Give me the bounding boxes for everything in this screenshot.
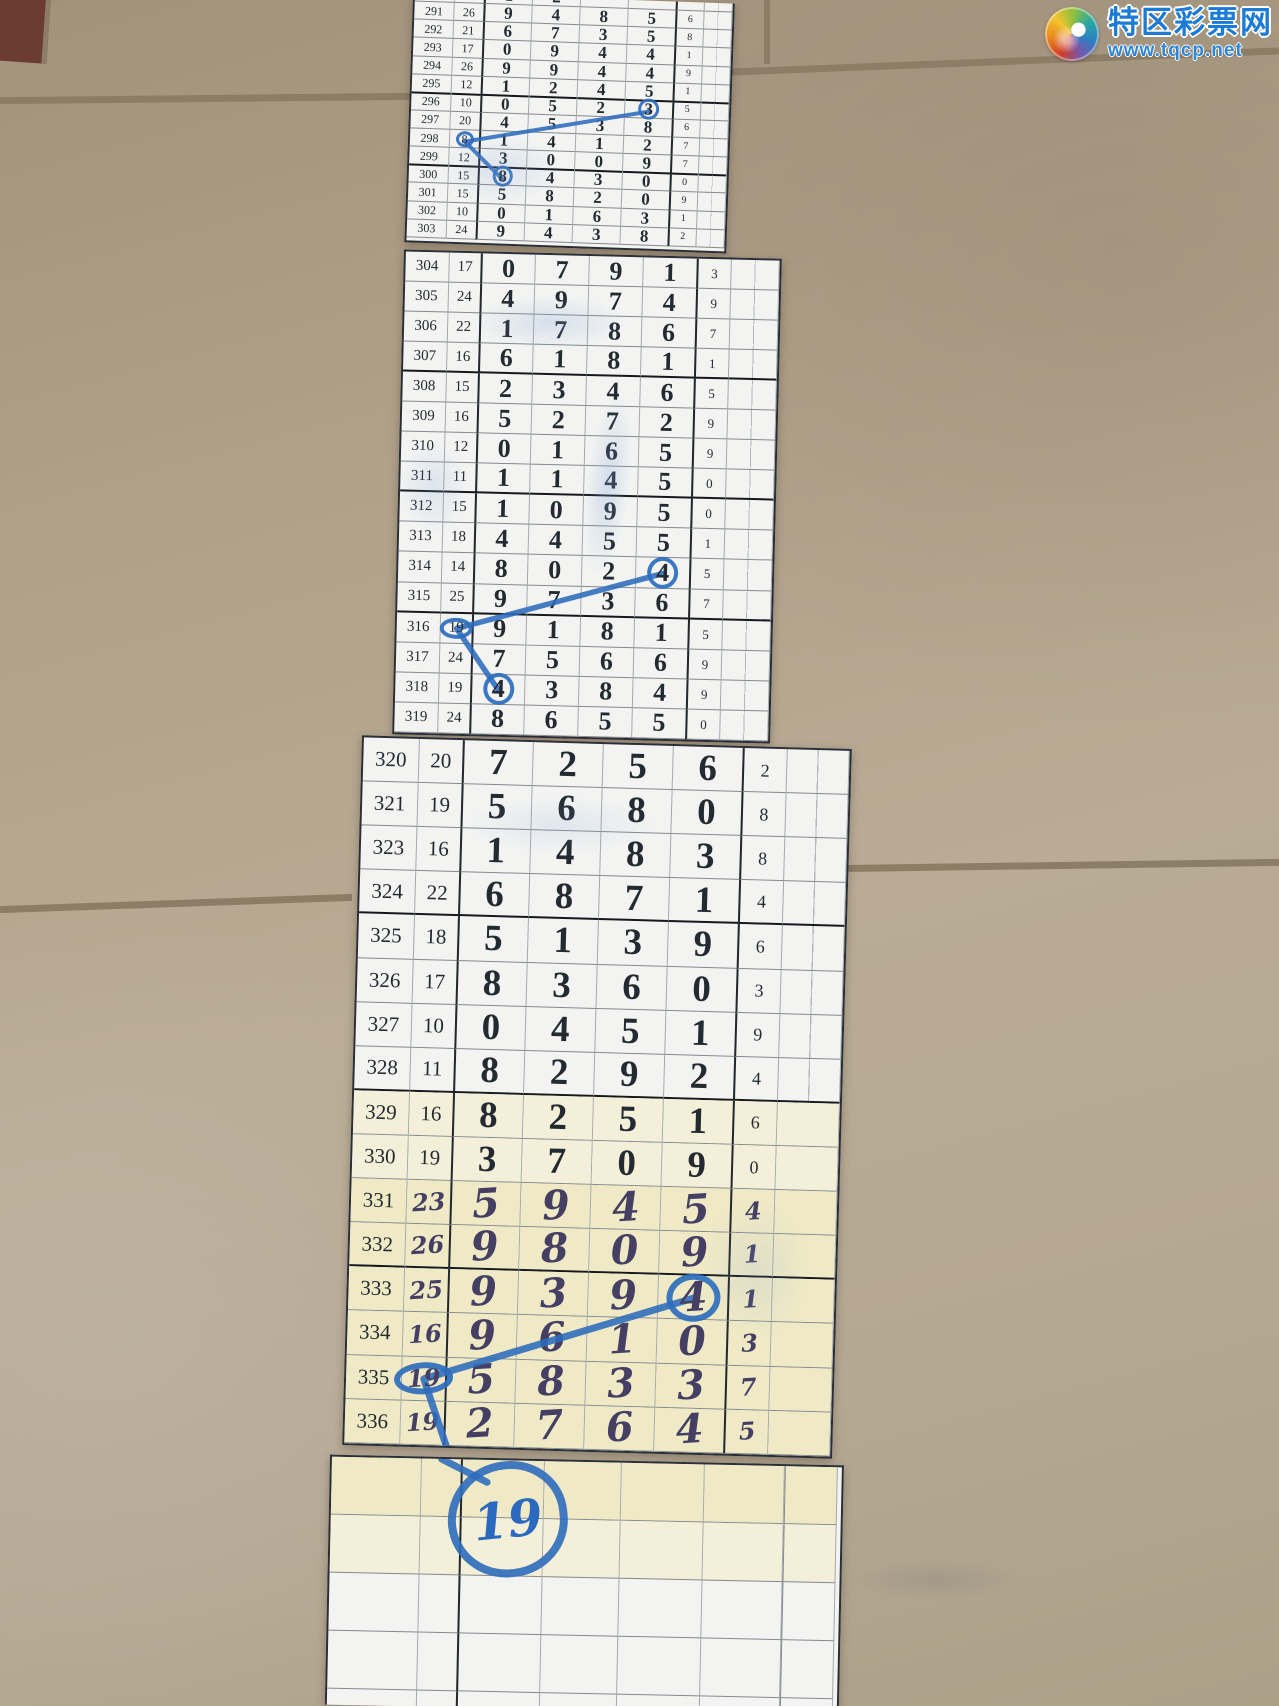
cell-digit: 8 [587,346,642,377]
cell-empty [730,290,779,321]
empty-grid-sheet: 19 [325,1455,844,1706]
cell-empty [702,66,731,85]
cell-tail-value: 5 [723,1409,769,1454]
site-watermark-text: 特区彩票网 www.tqcp.net [1108,7,1273,62]
pen-circled-19-label: 19 [470,1487,545,1553]
cell-digit: 8 [601,788,672,834]
cell-digit: 1 [576,134,625,154]
cell-sum-value: 10 [411,1003,456,1048]
cell-digit: 5 [477,185,527,205]
cell-empty [780,970,843,1016]
cell-digit: 8 [580,616,635,647]
cell-period-number: 312 [399,492,444,523]
cell-empty [785,793,848,839]
cell-tail-value: 6 [675,11,705,30]
cell-period-number: 332 [349,1222,406,1268]
cell-empty [769,1366,832,1412]
pen-circle-annotation: 19 [449,620,464,635]
cell-digit: 1 [479,131,529,151]
cell-tail-value: 9 [695,289,731,320]
cell-digit: 1 [530,465,585,496]
cell-digit: 2 [624,136,673,156]
cell-digit: 8 [473,554,529,585]
cell-digit: 4 [524,223,573,243]
cell-period-number: 305 [404,282,449,313]
cell-digit: 9 [589,256,644,287]
cell-digit: 3 [518,1271,589,1317]
cell-tail-value: 7 [724,1365,770,1410]
cell-digit: 6 [642,317,697,348]
cell-digit: 8 [452,1093,524,1139]
cell-tail-value [781,1582,835,1641]
cell-period-number: 314 [398,552,443,583]
cell-digit: 4 [579,44,628,64]
cell-digit: 2 [531,405,586,436]
cell-empty [722,650,771,681]
cell-sum-value [417,1633,458,1692]
cell-period-number: 316 [396,612,441,643]
cell-sum-value: 25 [404,1268,449,1313]
cell-digit: 5 [444,1357,516,1403]
cell-period-number: 307 [403,342,448,373]
cell-digit: 3 [670,834,741,880]
cell-digit: 8 [579,677,634,708]
cell-digit: 5 [637,528,692,559]
cell-empty [784,837,847,883]
cell-empty [700,138,729,157]
cell-digit: 4 [479,283,535,314]
cell-digit: 4 [529,525,584,556]
site-name: 特区彩票网 [1108,7,1273,40]
cell-digit: 8 [588,316,643,347]
cell-period-number: 319 [394,702,439,733]
cell-digit: 1 [474,494,530,525]
cell-digit: 7 [514,1403,585,1449]
cell-digit: 1 [669,878,740,924]
cell-empty [728,380,777,411]
cell-digit: 4 [590,1185,661,1231]
cell-sum-value: 26 [405,1224,450,1269]
cell-tail-value: 7 [695,319,731,350]
cell-digit: 7 [462,740,534,786]
cell-sum-value: 12 [452,75,483,95]
cell-empty [722,620,771,651]
cell-digit: 8 [477,167,527,187]
cell-digit: 7 [471,644,527,675]
cell-digit: 4 [474,524,530,555]
cell-sum-value: 24 [440,643,473,674]
cell-digit: 5 [638,468,693,499]
cell-period-number: 299 [409,146,450,166]
pen-circle-annotation: 4 [491,676,505,702]
cell-tail-value: 0 [730,1145,776,1190]
cell-digit: 9 [662,1143,733,1189]
cell-period-number: 317 [396,642,441,673]
cell-period-number: 293 [413,38,454,58]
cell-digit: 2 [582,556,637,587]
cell-digit: 2 [477,373,533,404]
cell-sum-value: 11 [444,463,477,494]
cell-empty [696,229,725,248]
cell-digit: 9 [588,1273,659,1319]
cell-digit: 9 [531,42,580,62]
cell-digit: 8 [526,187,575,207]
cell-period-number: 331 [350,1178,407,1224]
cell-digit: 7 [527,585,582,616]
cell-digit [618,1579,702,1639]
cell-empty [703,48,732,67]
cell-sum-value: 22 [448,313,481,344]
cell-digit: 6 [573,207,622,227]
table-row-empty [327,1631,838,1700]
cell-tail-value: 4 [733,1057,779,1102]
cell-period-number: 309 [402,402,447,433]
cell-digit: 4 [642,287,697,318]
cell-empty [772,1278,835,1324]
cell-sum-value: 15 [448,166,479,185]
cell-digit: 8 [580,7,629,27]
cell-empty [782,926,845,972]
cell-tail-value: 4 [729,1189,775,1234]
cell-tail-value: 0 [691,469,727,500]
cell-digit: 6 [478,343,534,374]
cell-empty [701,84,730,104]
cell-period-number: 313 [399,522,444,553]
cell-tail-value: 7 [670,156,700,176]
cell-tail-value [784,1466,838,1525]
cell-period-number [328,1573,419,1633]
cell-period-number [330,1515,421,1575]
cell-digit: 4 [654,1407,725,1453]
cell-sum-value: 24 [447,220,478,239]
cell-period-number: 306 [404,312,449,343]
cell-digit: 5 [460,784,532,830]
cell-digit: 9 [668,922,739,968]
cell-period-number: 304 [405,252,450,283]
cell-digit: 5 [528,114,577,134]
cell-empty [729,350,778,381]
cell-digit: 9 [530,60,579,80]
cell-digit: 2 [523,1095,594,1141]
cell-digit: 2 [664,1055,735,1101]
cell-digit: 9 [472,584,528,615]
table-row-empty [330,1515,841,1584]
cell-sum-value: 16 [403,1312,448,1357]
cell-tail-value [782,1524,836,1583]
cell-digit: 3 [655,1363,726,1409]
cell-period-number [331,1457,422,1517]
cell-sum-value: 19 [408,1136,453,1181]
cell-digit: 7 [588,286,643,317]
site-logo-swirl-icon [1045,7,1099,61]
pen-circle-annotation: 8 [461,133,467,145]
cell-digit: 6 [517,1315,588,1361]
cell-digit: 8 [600,832,671,878]
cell-digit: 5 [593,1097,664,1143]
cell-digit: 1 [587,1317,658,1363]
cell-digit [617,1637,701,1697]
cell-digit: 5 [632,708,687,739]
cell-period-number: 292 [414,20,455,40]
cell-period-number [327,1631,418,1691]
cell-period-number: 324 [359,870,416,916]
cell-tail-value: 1 [728,1233,774,1278]
cell-tail-value: 4 [738,880,784,925]
number-table: 3202072562321195680832316148383242268714… [344,737,850,1456]
cell-digit: 0 [671,790,742,836]
cell-tail-value [780,1640,834,1699]
cell-sum-value: 24 [438,703,471,734]
cell-sum-value: 17 [453,39,484,58]
cell-sum-value: 12 [449,148,480,168]
tile-grout-line [764,0,770,64]
cell-digit: 2 [639,408,694,439]
cell-digit [699,1696,780,1706]
cell-digit: 4 [633,678,688,709]
cell-digit: 0 [589,1229,660,1275]
cell-sum-value: 11 [410,1048,455,1093]
cell-digit: 6 [634,648,689,679]
cell-digit: 5 [449,1181,521,1227]
cell-digit: 9 [447,1269,519,1315]
cell-digit: 8 [620,226,669,246]
cell-digit: 4 [586,376,641,407]
cell-tail-value: 7 [688,589,724,620]
cell-digit: 4 [532,6,581,26]
cell-digit: 0 [622,190,671,210]
cell-period-number: 315 [397,582,442,613]
cell-digit: 9 [583,496,638,527]
cell-empty [727,410,776,441]
cell-sum-value: 26 [452,57,483,76]
cell-empty [724,560,773,591]
cell-digit: 1 [634,618,689,649]
cell-digit: 1 [663,1099,734,1145]
cell-sum-value: 22 [415,871,460,916]
cell-sum-value: 17 [449,253,482,284]
cell-digit [616,1695,700,1706]
tile-grout-line [834,859,1279,872]
cell-digit: 5 [578,707,633,738]
cell-digit: 0 [529,495,584,526]
cell-digit: 1 [525,205,574,225]
cell-digit: 3 [585,1361,656,1407]
cell-digit [700,1638,781,1698]
cell-sum-value: 14 [442,553,475,584]
cell-sum-value: 20 [419,739,464,784]
cell-sum-value: 16 [409,1092,454,1137]
cell-sum-value: 25 [441,583,474,614]
cell-sum-value: 21 [453,21,484,40]
cell-period-number: 328 [354,1046,411,1092]
cell-digit: 6 [585,436,640,467]
cell-digit: 2 [533,742,604,788]
tile-grout-line [0,894,352,913]
cell-tail-value: 0 [690,499,726,530]
cell-period-number: 296 [411,92,452,112]
cell-tail-value: 9 [669,192,699,211]
cell-empty [777,1102,840,1148]
cell-tail-value: 3 [696,259,732,290]
cell-digit: 9 [483,4,533,24]
cell-digit: 5 [457,916,529,962]
cell-digit: 4 [627,45,676,65]
cell-period-number: 291 [414,2,455,22]
cell-digit: 6 [458,872,530,918]
cell-empty [787,749,850,795]
dark-tile-corner [0,0,52,64]
cell-sum-value [418,1575,459,1634]
cell-period-number: 311 [400,462,445,493]
cell-digit [704,1464,785,1524]
cell-sum-value: 8 [450,130,481,149]
cell-tail-value: 3 [735,968,781,1013]
cell-digit: 2 [524,1051,595,1097]
cell-period-number: 297 [410,110,451,130]
cell-empty [768,1411,831,1457]
cell-period-number: 318 [395,672,440,703]
cell-digit: 7 [534,315,589,346]
cell-digit: 8 [624,118,673,138]
cell-digit: 3 [579,25,628,45]
cell-digit: 0 [622,172,671,192]
cell-empty [779,1014,842,1060]
cell-digit: 4 [528,132,577,152]
cell-digit: 0 [528,555,583,586]
cell-digit [455,1691,540,1706]
cell-digit: 3 [572,225,621,245]
cell-sum-value: 24 [448,283,481,314]
pen-circle-annotation: 19 [406,1365,441,1391]
tile-grout-line [0,93,416,104]
cell-sum-value: 23 [406,1180,451,1225]
cell-empty [730,320,779,351]
table-row-empty [328,1573,839,1642]
cell-tail-value: 1 [672,83,702,103]
cell-sum-value: 20 [450,112,481,131]
cell-digit: 9 [520,1183,591,1229]
cell-period-number: 310 [401,432,446,463]
cell-tail-value: 2 [667,228,697,247]
cell-digit: 6 [673,746,744,792]
cell-empty [698,193,727,212]
cell-empty [723,590,772,621]
cell-digit: 5 [603,744,674,790]
cell-period-number: 330 [352,1134,409,1180]
pen-circle-annotation: 4 [678,1277,708,1319]
cell-digit: 0 [480,253,536,284]
cell-digit: 8 [469,704,525,735]
cell-period-number: 308 [402,372,447,403]
cell-period-number: 325 [358,914,415,960]
number-table: 2901229126948562922167358293170944129426… [407,0,734,248]
cell-tail-value: 9 [734,1012,780,1057]
cell-empty [701,102,730,121]
cell-period-number: 302 [407,201,448,221]
cell-digit: 9 [448,1225,520,1271]
cell-digit: 6 [580,646,635,677]
photo-of-lottery-charts: 特区彩票网 www.tqcp.net 290122912694856292216… [0,0,1279,1706]
cell-digit: 3 [525,675,580,706]
cell-sum-value: 16 [446,403,479,434]
cell-digit: 6 [524,705,579,736]
cell-digit: 3 [598,920,669,966]
cell-tail-value: 9 [687,649,723,680]
cell-period-number: 327 [355,1002,412,1048]
cell-tail-value: 8 [739,836,785,881]
cell-tail-value: 0 [669,174,699,193]
cell-digit [457,1575,542,1635]
cell-period-number [326,1689,417,1706]
cell-sum-value: 19 [400,1400,445,1445]
cell-empty [700,120,729,139]
cell-empty [724,530,773,561]
cell-digit [703,1522,784,1582]
cell-digit: 0 [482,40,532,60]
cell-sum-value: 10 [447,202,478,221]
cell-tail-value [779,1698,833,1706]
cell-digit: 4 [658,1275,729,1321]
cell-digit: 5 [477,404,533,435]
cell-empty [698,175,727,194]
cell-digit: 9 [476,221,526,241]
cell-sum-value: 15 [446,373,479,404]
cell-digit: 3 [574,170,623,190]
site-watermark: 特区彩票网 www.tqcp.net [1045,7,1273,62]
cell-sum-value: 17 [413,959,458,1004]
cell-empty [699,157,728,177]
cell-digit: 3 [576,116,625,136]
cell-digit: 7 [599,876,670,922]
cell-period-number: 329 [353,1090,410,1136]
cell-digit: 1 [641,347,696,378]
cell-digit: 2 [574,189,623,209]
lottery-sheet-rows-304-319: 3041707913305244974930622178673071661811… [392,249,782,743]
cell-empty [778,1058,841,1104]
cell-digit [541,1577,619,1637]
cell-sum-value: 10 [451,94,482,113]
cell-tail-value: 8 [674,29,704,48]
cell-tail-value: 1 [668,210,698,229]
cell-sum-value [416,1690,457,1706]
cell-sum-value: 19 [440,613,473,644]
cell-period-number: 333 [348,1266,405,1312]
cell-empty [725,500,774,531]
cell-digit: 6 [584,1405,655,1451]
cell-digit: 2 [577,98,626,118]
cell-digit: 5 [628,9,677,29]
cell-empty [727,440,776,471]
cell-period-number: 321 [361,781,418,827]
cell-period-number: 334 [347,1311,404,1357]
lottery-sheet-rows-320-336: 3202072562321195680832316148383242268714… [342,735,852,1458]
cell-sum-value: 16 [447,343,480,374]
cell-digit: 1 [475,464,531,495]
cell-digit: 0 [476,203,526,223]
cell-digit: 6 [596,965,667,1011]
cell-digit: 1 [526,615,581,646]
cell-sum-value: 18 [443,523,476,554]
cell-digit: 5 [529,96,578,116]
cell-tail-value: 1 [694,349,730,380]
cell-digit: 7 [531,24,580,44]
cell-empty [697,211,726,230]
cell-tail-value: 6 [737,924,783,969]
cell-period-number: 320 [363,737,420,783]
cell-digit: 0 [480,95,530,115]
cell-digit: 9 [594,1053,665,1099]
cell-empty [774,1190,837,1236]
